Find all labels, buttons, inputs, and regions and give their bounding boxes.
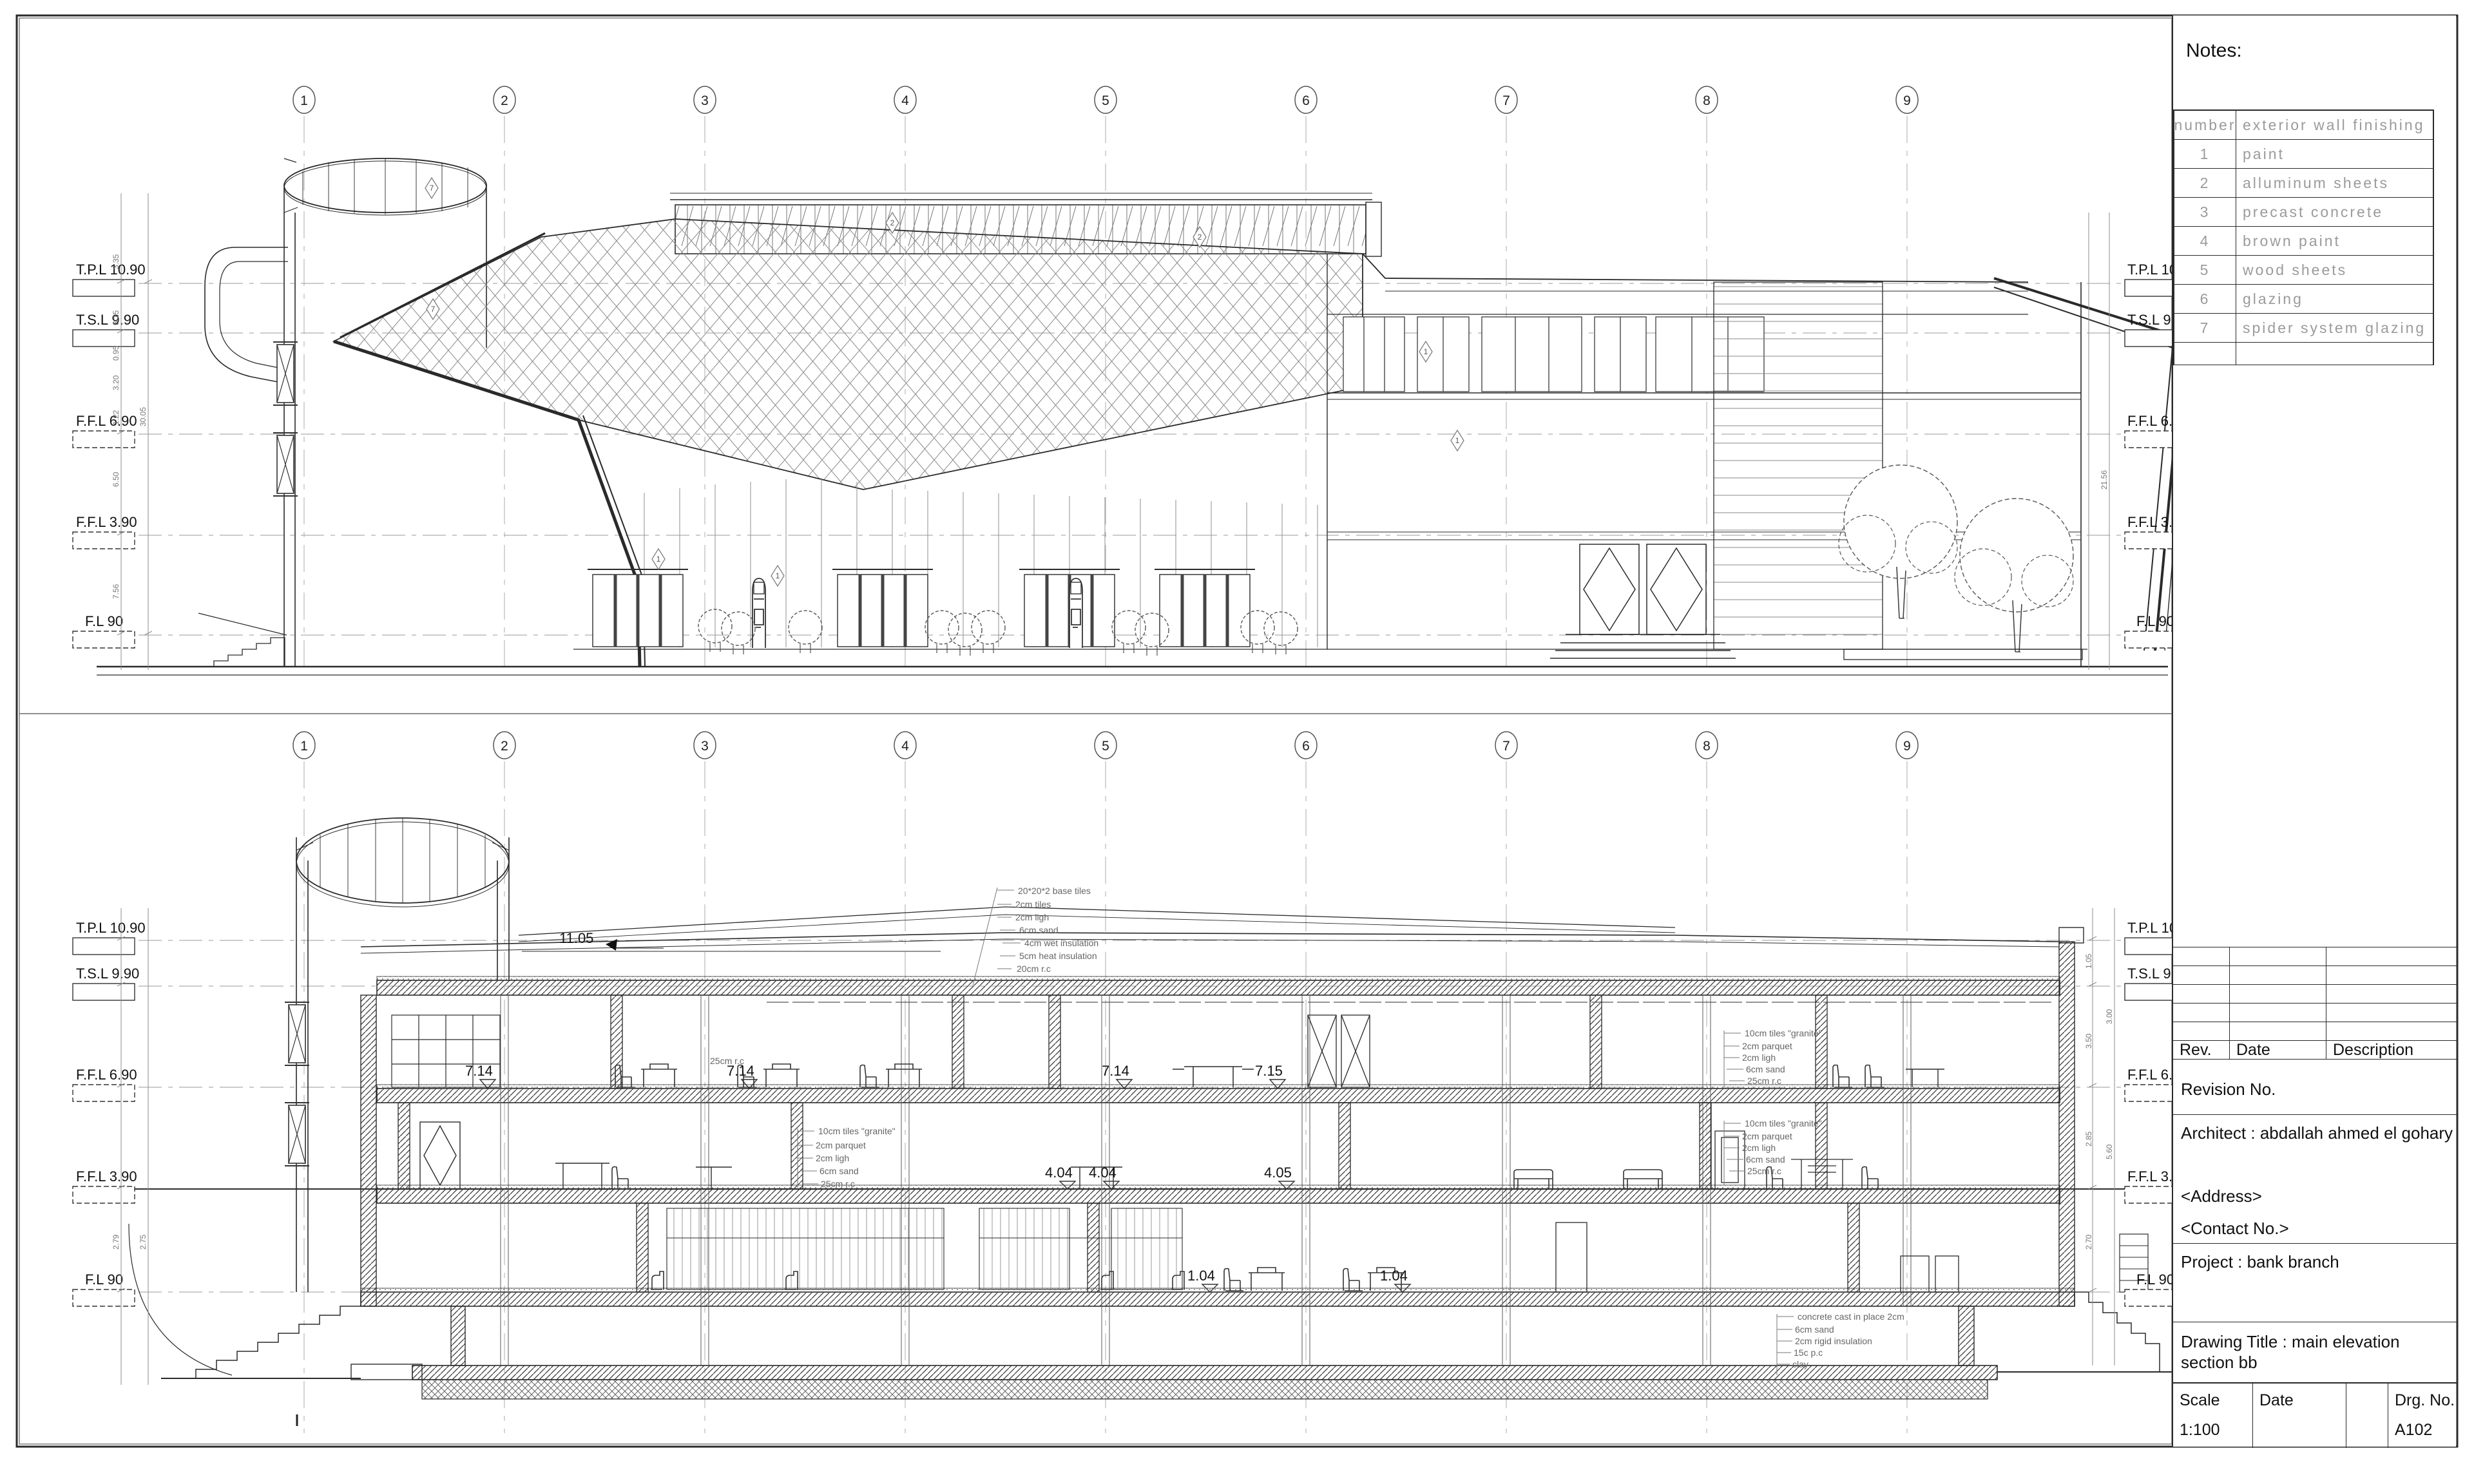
callout-line: 10cm tiles "granite": [1745, 1118, 1822, 1128]
callout-line: 5cm heat insulation: [1019, 951, 1097, 961]
section-level-markers-left: T.P.L 10.90 T.S.L 9.90 F.F.L 6.90 F.F.L …: [73, 920, 146, 1306]
level-label: T.P.L 10.90: [76, 920, 146, 936]
rev-date-header: Date: [2230, 1041, 2326, 1059]
dim-text: 2.85: [2084, 1131, 2093, 1146]
revision-table: Rev. Date Description: [2173, 947, 2457, 1060]
section-floor-callout-2: 10cm tiles "granite" 2cm parquet 2cm lig…: [1724, 1028, 1822, 1087]
notes-table-row: 6 glazing: [2174, 285, 2433, 314]
level-label: F.F.L 3.90: [76, 1168, 137, 1184]
grid-bubble-label: 6: [1302, 739, 1310, 754]
keynote-label: 2: [890, 218, 895, 227]
elevation-level-markers-left: T.P.L 10.90 T.S.L 9.90 F.F.L 6.90 F.F.L …: [73, 262, 146, 648]
revision-header-row: Rev. Date Description: [2173, 1041, 2457, 1060]
notes-row-number: 2: [2174, 169, 2236, 197]
callout-line: 25cm r.c: [821, 1179, 855, 1189]
grid-bubble-label: 1: [300, 739, 308, 754]
keynote-label: 2: [1198, 233, 1202, 242]
notes-row-finishing: brown paint: [2236, 227, 2433, 255]
drg-no-label: Drg. No.: [2395, 1391, 2455, 1410]
rev-header: Rev.: [2173, 1041, 2230, 1059]
dim-text: 30.05: [139, 407, 148, 426]
notes-row-finishing: alluminum sheets: [2236, 169, 2433, 197]
grid-bubble-label: 7: [1502, 739, 1510, 754]
slab-note: 25cm r.c: [710, 1056, 744, 1066]
notes-table-row: 5 wood sheets: [2174, 256, 2433, 285]
drawing-title-line1: Drawing Title : main elevation: [2181, 1332, 2400, 1352]
notes-row-number: 5: [2174, 256, 2236, 284]
callout-line: 25cm r.c: [1747, 1166, 1781, 1176]
callout-line: 20*20*2 base tiles: [1018, 886, 1091, 896]
callout-line: 10cm tiles "granite": [818, 1126, 896, 1136]
notes-row-number: 3: [2174, 198, 2236, 226]
section-roof-callout: 20*20*2 base tiles 2cm tiles 2cm ligh 6c…: [973, 886, 1098, 985]
callout-line: 2cm ligh: [1742, 1143, 1776, 1153]
callout-line: 2cm ligh: [816, 1153, 849, 1163]
scale-strip: Scale 1:100 Date Drg. No. A102: [2173, 1382, 2457, 1447]
grid-bubble-label: 3: [701, 739, 709, 754]
grid-bubble-label: 8: [1703, 93, 1711, 108]
spot-elevation: 4.05: [1264, 1165, 1292, 1181]
architect-field: Architect : abdallah ahmed el gohary: [2181, 1123, 2453, 1143]
drawing-sheet: 1 2 3 4 5 6 7 8 9: [0, 0, 2474, 1484]
callout-line: 2cm ligh: [1015, 912, 1049, 922]
drawing-title-line2: section bb: [2181, 1353, 2258, 1373]
keynote-label: 1: [657, 555, 661, 564]
drg-no-value: A102: [2395, 1421, 2432, 1440]
dim-text: 0.95: [111, 345, 120, 361]
notes-row-finishing: paint: [2236, 140, 2433, 168]
grid-bubble-label: 4: [901, 93, 909, 108]
dim-text: 3.35: [111, 254, 120, 269]
grid-bubble-label: 2: [501, 93, 508, 108]
notes-table-row: 3 precast concrete: [2174, 198, 2433, 227]
callout-line: 15c p.c: [1794, 1347, 1823, 1358]
section-second-floor-furniture: [392, 1015, 1944, 1087]
elevation-storefront: [588, 478, 1318, 656]
section-left-stair: [129, 1224, 361, 1378]
notes-row-number: 7: [2174, 314, 2236, 342]
title-block-column: Notes: number exterior wall finishing 1 …: [2172, 15, 2456, 1447]
dim-text: 6.50: [111, 471, 120, 487]
section-floor-callout-3: 10cm tiles "granite" 2cm parquet 2cm lig…: [1724, 1118, 1822, 1185]
notes-row-number: 1: [2174, 140, 2236, 168]
project-field: Project : bank branch: [2181, 1252, 2339, 1272]
callout-line: concrete cast in place 2cm: [1798, 1311, 1904, 1322]
notes-table-header-row: number exterior wall finishing: [2174, 111, 2433, 140]
grid-bubble-label: 4: [901, 739, 909, 754]
callout-line: 2cm tiles: [1015, 899, 1051, 909]
grid-bubble-label: 9: [1903, 93, 1911, 108]
grid-bubble-label: 5: [1102, 93, 1109, 108]
level-label: F.L 90: [2136, 613, 2174, 629]
grid-bubble-label: 3: [701, 93, 709, 108]
keynote-label: 7: [430, 184, 434, 193]
callout-line: 2cm parquet: [816, 1140, 866, 1150]
level-label: T.P.L 10.90: [76, 262, 146, 278]
scale-label: Scale: [2180, 1391, 2220, 1410]
level-label: F.L 90: [85, 1271, 123, 1288]
notes-table-row: 1 paint: [2174, 140, 2433, 169]
dim-text: 5.60: [2105, 1144, 2114, 1159]
callout-line: 6cm sand: [1019, 925, 1059, 935]
spot-elevation: 7.15: [1255, 1063, 1283, 1079]
spot-elevation: 1.04: [1380, 1268, 1408, 1284]
dim-text: 2.79: [111, 1234, 120, 1250]
callout-line: 2cm parquet: [1742, 1131, 1792, 1141]
keynote-label: 1: [1455, 436, 1460, 445]
keynote-label: 7: [431, 305, 436, 314]
spot-elevation: 1.04: [1187, 1268, 1215, 1284]
contact-field: <Contact No.>: [2181, 1219, 2289, 1239]
dim-text: 2.70: [2084, 1234, 2093, 1250]
grid-bubble-label: 9: [1903, 739, 1911, 754]
spot-elevation: 11.05: [559, 930, 593, 946]
grid-bubble-label: 5: [1102, 739, 1109, 754]
keynote-label: 1: [1424, 347, 1428, 356]
level-label: F.L 90: [85, 613, 123, 629]
section-floor-callout-1: 10cm tiles "granite" 2cm parquet 2cm lig…: [798, 1126, 896, 1189]
notes-row-finishing: spider system glazing: [2236, 314, 2433, 342]
grid-bubble-label: 1: [300, 93, 308, 108]
elevation-right-building: [1327, 254, 2191, 667]
section-glazed-partitions: [667, 1208, 1182, 1289]
level-label: F.F.L 6.90: [76, 1067, 137, 1083]
level-label: F.F.L 6.90: [76, 413, 137, 429]
date-label: Date: [2259, 1391, 2294, 1410]
dim-text: 2.75: [139, 1234, 148, 1250]
dim-text: 7.56: [111, 584, 120, 599]
elevation-left-steps: [198, 613, 287, 667]
section-grid-bubbles: 1 2 3 4 5 6 7 8 9: [293, 732, 1918, 759]
rev-description-header: Description: [2326, 1041, 2457, 1059]
spot-elevation: 7.14: [1102, 1063, 1129, 1079]
dim-text: 3.50: [2084, 1033, 2093, 1049]
elevation-grid-bubbles: 1 2 3 4 5 6 7 8 9: [293, 86, 1918, 113]
notes-row-finishing: glazing: [2236, 285, 2433, 313]
callout-line: 6cm sand: [1746, 1064, 1785, 1074]
notes-row-number: 4: [2174, 227, 2236, 255]
revision-no-label: Revision No.: [2181, 1080, 2276, 1099]
grid-bubble-label: 8: [1703, 739, 1711, 754]
callout-line: 6cm sand: [1795, 1324, 1834, 1335]
dim-text: 21.56: [2100, 470, 2109, 490]
level-label: T.S.L 9.90: [76, 966, 139, 982]
notes-title: Notes:: [2186, 40, 2242, 62]
callout-line: 4cm wet insulation: [1024, 938, 1098, 948]
callout-line: 2cm ligh: [1742, 1052, 1776, 1063]
finishing-notes-table: number exterior wall finishing 1 paint 2…: [2173, 109, 2434, 365]
elevation-upper-windows: [1343, 317, 1764, 392]
dim-text: 3.00: [2105, 1009, 2114, 1024]
callout-line: 20cm r.c: [1017, 964, 1051, 974]
callout-line: 2cm parquet: [1742, 1041, 1792, 1051]
spot-elevation: 7.14: [465, 1063, 493, 1079]
spot-elevation: 4.04: [1045, 1165, 1073, 1181]
dim-text: 3.15: [111, 310, 120, 325]
callout-line: 6cm sand: [1746, 1154, 1785, 1165]
main-elevation-drawing: [97, 158, 2191, 675]
dim-text: 3.20: [111, 375, 120, 390]
callout-line: clay: [1792, 1359, 1808, 1369]
drawing-canvas: 1 2 3 4 5 6 7 8 9: [0, 0, 2474, 1484]
level-label: T.S.L 9.90: [76, 312, 139, 328]
section-cylinder-tower: [296, 818, 509, 1292]
elevation-entry-doors: [1550, 544, 1736, 658]
callout-line: 25cm r.c: [1747, 1076, 1781, 1086]
level-label: F.L 90: [2136, 1271, 2174, 1288]
notes-row-number: 6: [2174, 285, 2236, 313]
dim-text: 1.05: [2084, 953, 2093, 969]
notes-table-empty-row: [2174, 343, 2433, 365]
grid-bubble-label: 2: [501, 739, 508, 754]
elevation-cladding-strip: [1714, 282, 1883, 649]
notes-header-finishing: exterior wall finishing: [2236, 111, 2433, 139]
grid-bubble-label: 6: [1302, 93, 1310, 108]
spot-elevation: 4.04: [1089, 1165, 1117, 1181]
address-field: <Address>: [2181, 1186, 2262, 1206]
callout-line: 10cm tiles "granite": [1745, 1028, 1822, 1038]
elevation-cylinder-tower: [284, 158, 486, 667]
level-label: F.F.L 3.90: [76, 514, 137, 530]
notes-table-row: 2 alluminum sheets: [2174, 169, 2433, 198]
grid-bubble-label: 7: [1502, 93, 1510, 108]
notes-row-finishing: precast concrete: [2236, 198, 2433, 226]
scale-value: 1:100: [2180, 1421, 2220, 1440]
notes-table-row: 4 brown paint: [2174, 227, 2433, 256]
notes-row-finishing: wood sheets: [2236, 256, 2433, 284]
section-first-floor-furniture: [420, 1122, 1881, 1189]
dim-text: 1.22: [111, 410, 120, 425]
callout-line: 2cm rigid insulation: [1795, 1336, 1872, 1346]
section-ground-hatch: [422, 1380, 1988, 1399]
keynote-label: 1: [776, 571, 780, 580]
callout-line: 6cm sand: [820, 1166, 859, 1176]
notes-table-row: 7 spider system glazing: [2174, 314, 2433, 343]
notes-header-number: number: [2174, 111, 2236, 139]
